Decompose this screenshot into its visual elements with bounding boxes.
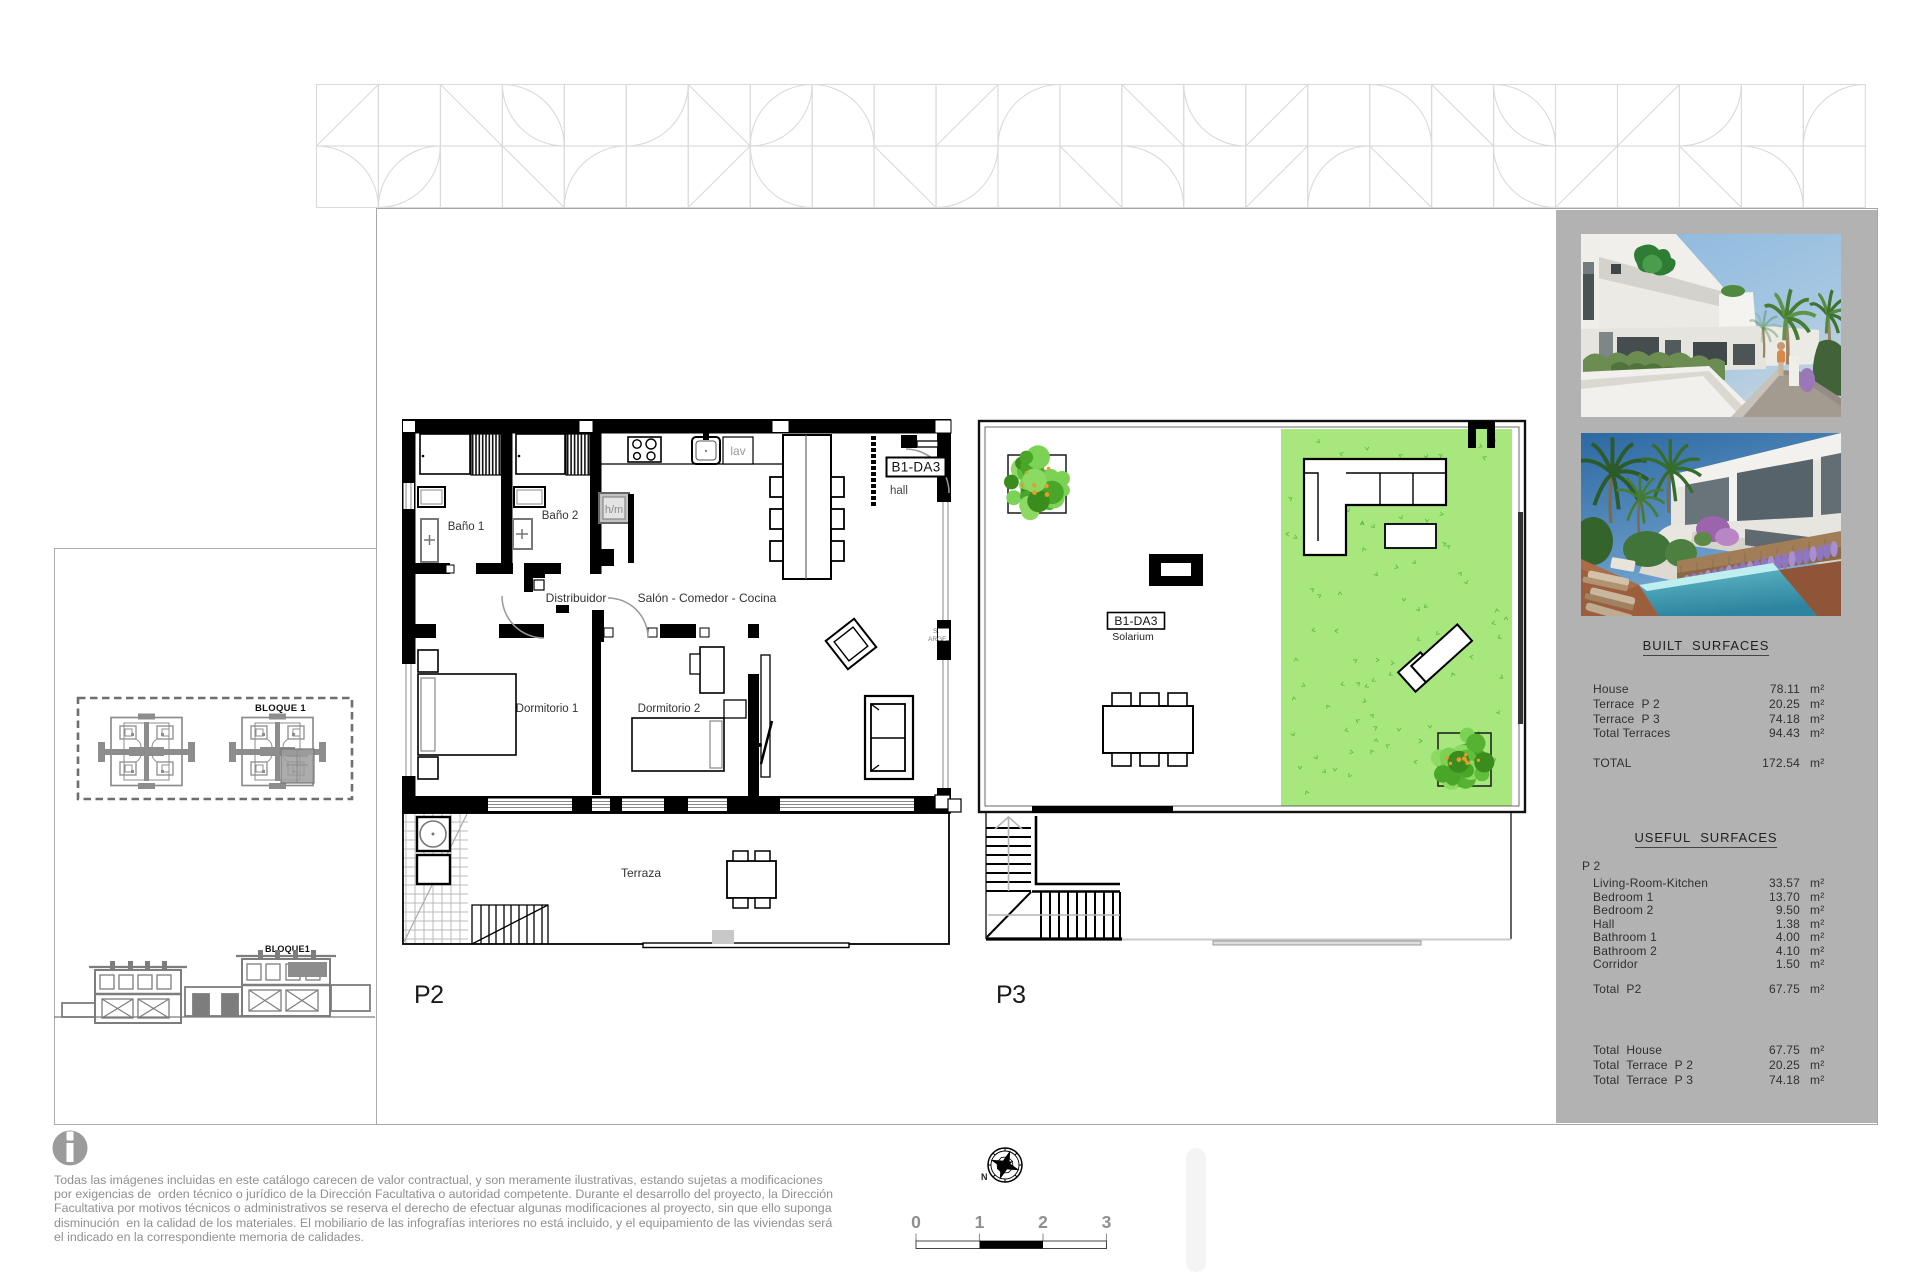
svg-text:hall: hall (890, 485, 908, 497)
svg-text:Dormitorio 2: Dormitorio 2 (638, 703, 701, 715)
svg-text:N: N (981, 1172, 988, 1182)
svg-text:S.: S. (933, 628, 939, 635)
svg-text:Distribuidor: Distribuidor (546, 591, 607, 605)
svg-text:Terraza: Terraza (621, 866, 661, 880)
svg-text:P3: P3 (996, 981, 1026, 1009)
svg-text:P2: P2 (414, 981, 444, 1009)
svg-text:ARGE: ARGE (928, 636, 947, 643)
svg-text:lav: lav (730, 444, 745, 458)
svg-text:h/m: h/m (605, 504, 623, 516)
svg-text:BLOQUE1: BLOQUE1 (265, 944, 310, 954)
svg-text:Dormitorio 1: Dormitorio 1 (516, 703, 579, 715)
svg-text:0: 0 (911, 1212, 921, 1232)
svg-text:Baño 2: Baño 2 (542, 510, 578, 522)
svg-text:BLOQUE 1: BLOQUE 1 (255, 703, 306, 714)
svg-text:3: 3 (1102, 1212, 1112, 1232)
svg-text:Salón - Comedor - Cocina: Salón - Comedor - Cocina (638, 591, 777, 605)
svg-text:2: 2 (1038, 1212, 1048, 1232)
svg-text:Solarium: Solarium (1112, 631, 1154, 643)
svg-text:B1-DA3: B1-DA3 (891, 460, 940, 475)
svg-text:1: 1 (975, 1212, 985, 1232)
svg-text:B1-DA3: B1-DA3 (1114, 614, 1157, 628)
svg-text:Baño 1: Baño 1 (448, 521, 484, 533)
